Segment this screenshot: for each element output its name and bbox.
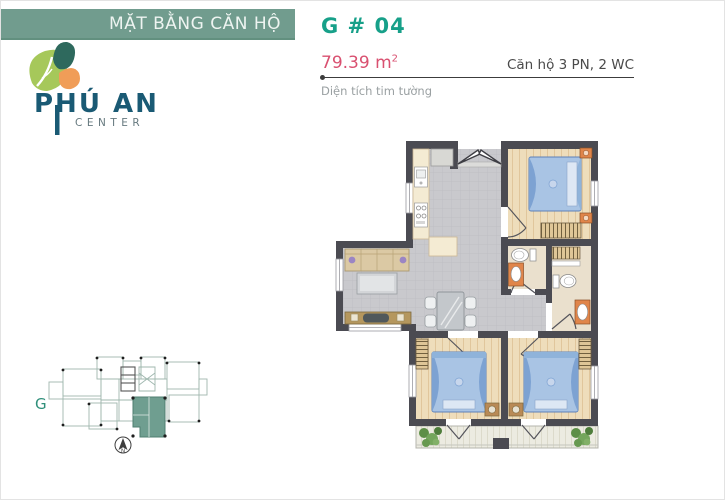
compass-north-label: N	[121, 449, 125, 455]
floor-plan	[336, 141, 598, 449]
sink	[575, 300, 590, 324]
key-plan-block-label: G	[35, 395, 47, 413]
key-plan: G N	[35, 357, 207, 455]
kitchen-counter-return	[429, 237, 457, 256]
nightstand	[509, 403, 523, 416]
nightstand	[485, 403, 499, 416]
sink	[509, 263, 524, 286]
window	[591, 181, 598, 206]
bath-cabinet	[552, 247, 580, 259]
key-plan-unit-highlight	[133, 397, 165, 437]
kitchen-sink	[415, 167, 428, 187]
logo-name: PHÚ AN	[34, 87, 159, 119]
toilet	[512, 249, 537, 262]
logo-subtitle: CENTER	[75, 117, 144, 129]
window	[406, 183, 413, 213]
brochure-page: MẶT BẰNG CĂN HỘ G # 04 79.39 m2 Căn hộ 3…	[0, 0, 725, 500]
fridge	[431, 149, 453, 166]
compass-icon: N	[115, 437, 131, 455]
wardrobe	[541, 223, 581, 238]
wardrobe	[579, 339, 591, 369]
key-plan-outline	[49, 357, 207, 429]
plant-decor	[349, 257, 356, 264]
bedroom-2-bed	[432, 352, 486, 412]
window	[336, 259, 343, 291]
bedroom-3-bed	[524, 352, 578, 412]
bedroom-1-bed	[529, 157, 581, 211]
plan-graphics: PHÚ AN CENTER	[1, 1, 725, 500]
window	[409, 365, 416, 397]
coffee-table	[357, 273, 397, 294]
wardrobe	[416, 339, 428, 369]
logo: PHÚ AN CENTER	[29, 42, 158, 135]
tv-console	[345, 312, 411, 324]
bath-shelf	[552, 261, 580, 266]
window	[349, 324, 401, 331]
stove	[415, 203, 428, 227]
plant-decor	[400, 257, 407, 264]
sofa	[345, 249, 409, 271]
window	[591, 366, 598, 399]
logo-leaves-icon	[29, 42, 80, 91]
toilet	[553, 275, 576, 289]
